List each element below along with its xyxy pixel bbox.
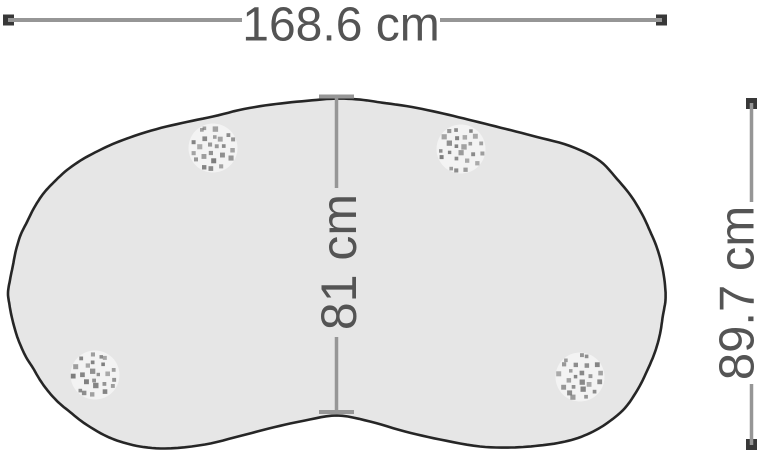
svg-text:81 cm: 81 cm xyxy=(311,194,367,330)
svg-text:89.7 cm: 89.7 cm xyxy=(711,206,765,380)
svg-text:168.6 cm: 168.6 cm xyxy=(242,0,439,52)
